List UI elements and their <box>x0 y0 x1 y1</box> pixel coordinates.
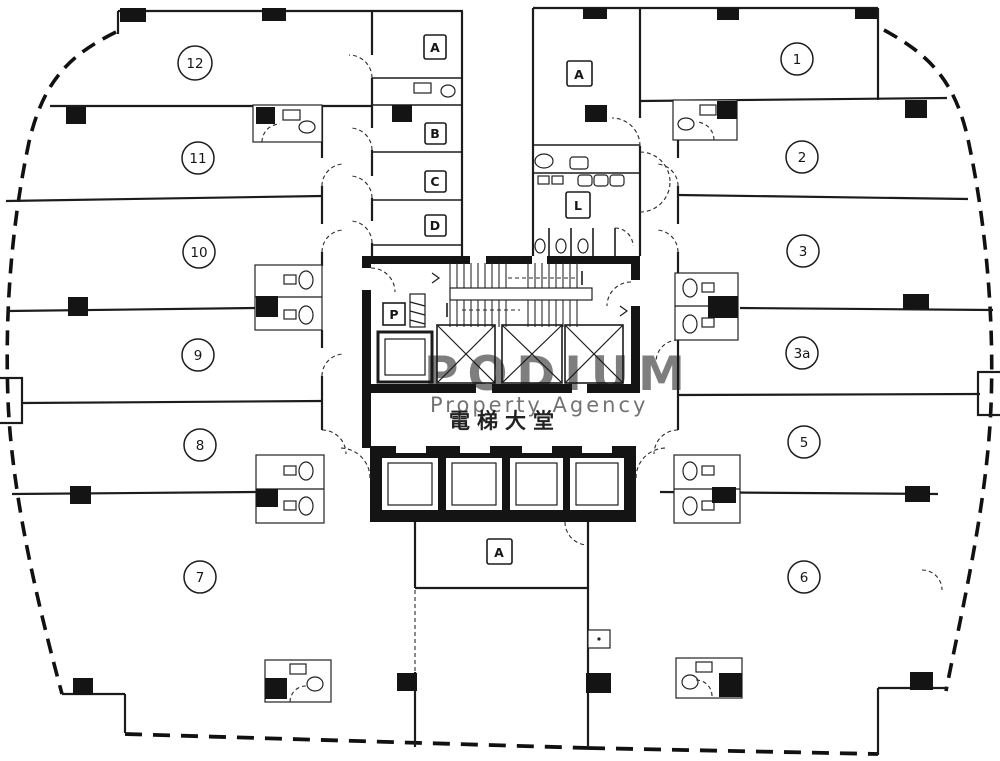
toilet <box>683 315 697 333</box>
toilet <box>535 239 545 253</box>
column <box>120 8 146 22</box>
column <box>903 294 929 309</box>
elevator-car <box>446 458 502 510</box>
wc-stalls <box>535 228 633 256</box>
toilet <box>299 271 313 289</box>
toilet <box>683 462 697 480</box>
basin <box>284 501 296 510</box>
svg-text:8: 8 <box>196 438 205 454</box>
basin <box>290 664 306 674</box>
svg-text:A: A <box>574 67 584 82</box>
east-wall-notch <box>978 372 1000 415</box>
divider-2-3 <box>678 195 968 199</box>
toilet <box>556 239 566 253</box>
svg-text:A: A <box>494 545 504 560</box>
room-box-c: C <box>425 171 446 192</box>
svg-text:12: 12 <box>186 56 203 72</box>
basin <box>284 466 296 475</box>
elevator-door <box>460 446 490 453</box>
elevator-car <box>510 458 563 510</box>
column <box>392 105 412 122</box>
basin <box>702 466 714 475</box>
divider-11-10 <box>6 196 322 201</box>
basin <box>696 662 712 672</box>
svg-text:A: A <box>430 40 440 55</box>
unit-bubble-5: 5 <box>788 426 820 458</box>
service-stack-abcd <box>322 11 462 256</box>
toilet <box>441 85 455 97</box>
basin <box>702 318 714 327</box>
toilet <box>299 121 315 133</box>
unit-bubble-7: 7 <box>184 561 216 593</box>
floor-plan-page: PODIUM Property Agency 電梯大堂 12 11 10 9 8… <box>0 0 1000 761</box>
toilet <box>578 239 588 253</box>
floor-plan-drawing: PODIUM Property Agency 電梯大堂 12 11 10 9 8… <box>0 0 1000 761</box>
toilet <box>682 675 698 689</box>
unit-bubble-8: 8 <box>184 429 216 461</box>
svg-text:D: D <box>430 218 440 233</box>
service-stack-right <box>533 8 670 256</box>
toilet <box>307 677 323 691</box>
svg-text:B: B <box>430 126 440 141</box>
column <box>719 673 742 697</box>
unit-bubble-1: 1 <box>781 43 813 75</box>
door-lobby-corridor <box>640 152 670 182</box>
hopper-dot <box>597 637 600 640</box>
divider-8-7 <box>12 492 257 494</box>
svg-text:5: 5 <box>800 435 809 451</box>
toilet <box>299 462 313 480</box>
south-curtain-wall-left <box>125 734 588 748</box>
svg-text:2: 2 <box>798 150 807 166</box>
column <box>712 487 736 503</box>
divider-10-9 <box>8 308 256 311</box>
divider-3a-5 <box>678 394 980 395</box>
toilet <box>299 306 313 324</box>
machine-room-inner <box>385 339 425 375</box>
svg-text:L: L <box>574 198 582 213</box>
divider-9-8 <box>22 401 322 403</box>
unit-bubble-6: 6 <box>788 561 820 593</box>
svg-text:6: 6 <box>800 570 809 586</box>
basin <box>535 154 553 168</box>
elevator-car <box>570 458 624 510</box>
elevator-door <box>522 446 552 453</box>
urinal <box>594 175 608 186</box>
column <box>262 8 286 21</box>
unit-bubble-3: 3 <box>787 235 819 267</box>
svg-text:3: 3 <box>799 244 808 260</box>
door-a-room <box>565 522 588 545</box>
urinal <box>610 175 624 186</box>
lobby-label: 電梯大堂 <box>449 409 561 433</box>
room-box-d: D <box>425 215 446 236</box>
watermark: PODIUM Property Agency <box>424 347 694 417</box>
column <box>265 678 287 699</box>
column <box>68 297 88 316</box>
column <box>717 8 739 20</box>
elevator-door <box>396 446 426 453</box>
column <box>256 107 275 124</box>
unit-bubble-10: 10 <box>183 236 215 268</box>
column <box>905 486 930 502</box>
column <box>70 486 91 504</box>
svg-text:1: 1 <box>793 52 802 68</box>
room-box-a-bottom: A <box>487 539 512 564</box>
unit-bubble-12: 12 <box>178 46 212 80</box>
unit-bubble-3a: 3a <box>786 337 818 369</box>
column <box>585 105 607 122</box>
door-lobby-corridor <box>640 182 670 212</box>
svg-text:11: 11 <box>189 151 206 167</box>
column <box>397 673 417 691</box>
room-box-a-top-left: A <box>424 35 446 59</box>
basin <box>414 83 431 93</box>
column <box>73 678 93 695</box>
svg-text:P: P <box>389 307 398 322</box>
svg-text:10: 10 <box>190 245 207 261</box>
column <box>256 296 278 317</box>
basin <box>570 157 588 169</box>
column <box>256 489 278 507</box>
toilet <box>683 279 697 297</box>
urinal <box>552 176 563 184</box>
column <box>583 8 607 19</box>
column <box>905 100 927 118</box>
svg-text:3a: 3a <box>794 346 811 362</box>
lobby-west-wall <box>362 392 371 448</box>
column <box>66 107 86 124</box>
room-box-l: L <box>566 192 590 218</box>
elevator-bank <box>370 446 636 522</box>
urinal <box>538 176 549 184</box>
toilet <box>299 497 313 515</box>
svg-text:C: C <box>430 174 439 189</box>
basin <box>700 105 716 115</box>
unit-bubble-9: 9 <box>182 339 214 371</box>
right-curtain-wall <box>884 30 992 691</box>
svg-text:7: 7 <box>196 570 205 586</box>
stair-landing <box>450 288 592 300</box>
room-box-p: P <box>389 307 398 322</box>
elevator-car <box>382 458 438 510</box>
south-curtain-wall-right <box>588 748 878 754</box>
urinal <box>578 175 592 186</box>
svg-text:9: 9 <box>194 348 203 364</box>
column <box>708 296 738 318</box>
column <box>855 8 877 19</box>
door-bank-west <box>340 448 370 478</box>
west-wall-notch <box>0 378 22 423</box>
unit-bubble-11: 11 <box>182 142 214 174</box>
room-box-a-top-right: A <box>567 61 592 86</box>
basin <box>284 275 296 284</box>
left-curtain-wall <box>7 32 116 694</box>
column <box>910 672 933 690</box>
door-bank-east <box>636 448 666 478</box>
door-unit1 <box>612 118 640 146</box>
basin <box>702 283 714 292</box>
divider-3-3a <box>740 308 993 310</box>
column <box>586 673 611 693</box>
unit-bubble-2: 2 <box>786 141 818 173</box>
toilet <box>683 497 697 515</box>
toilet <box>678 118 694 130</box>
elevator-door <box>582 446 612 453</box>
column <box>717 101 737 119</box>
basin <box>283 110 300 120</box>
basin <box>284 310 296 319</box>
duct-hatch <box>410 294 425 327</box>
room-box-b: B <box>425 123 446 144</box>
